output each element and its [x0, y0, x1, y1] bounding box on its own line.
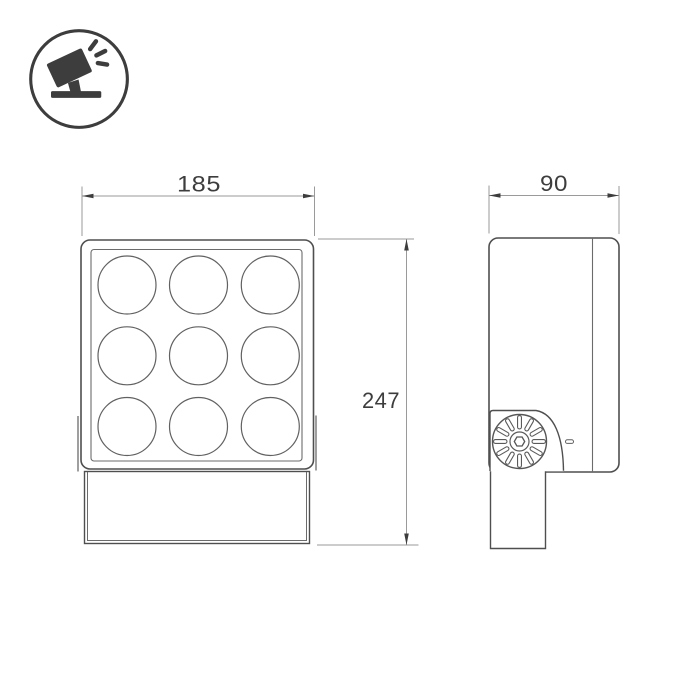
- lens: [241, 398, 299, 456]
- arrow-up-icon: [404, 239, 409, 251]
- lens: [241, 256, 299, 314]
- front-view: [78, 240, 316, 544]
- hinge-arm-fill: [491, 467, 546, 549]
- lens: [170, 327, 228, 385]
- indicator-dash: [566, 440, 574, 444]
- arrow-right-icon: [608, 193, 620, 198]
- dim-width-label: 185: [177, 172, 221, 197]
- dim-width: 185: [82, 172, 315, 237]
- side-view: [489, 238, 619, 549]
- lens: [170, 398, 228, 456]
- knob-hex-bolt: [514, 437, 524, 446]
- lens: [98, 327, 156, 385]
- arrow-down-icon: [404, 534, 409, 546]
- lens: [170, 256, 228, 314]
- dim-height-label: 247: [362, 388, 400, 413]
- arrow-left-icon: [489, 193, 501, 198]
- arrow-right-icon: [303, 194, 315, 199]
- arrow-left-icon: [82, 194, 94, 199]
- hinge-knob: [493, 415, 547, 469]
- lens-grid: [98, 256, 299, 456]
- dim-depth: 90: [489, 171, 619, 234]
- dim-depth-label: 90: [540, 171, 568, 196]
- lens: [98, 398, 156, 456]
- dim-height: 247: [317, 239, 419, 545]
- lens: [98, 256, 156, 314]
- lens: [241, 327, 299, 385]
- mounting-base: [85, 472, 310, 544]
- technical-drawing: 185 247 90: [0, 0, 700, 700]
- page-canvas: 185 247 90: [0, 0, 700, 700]
